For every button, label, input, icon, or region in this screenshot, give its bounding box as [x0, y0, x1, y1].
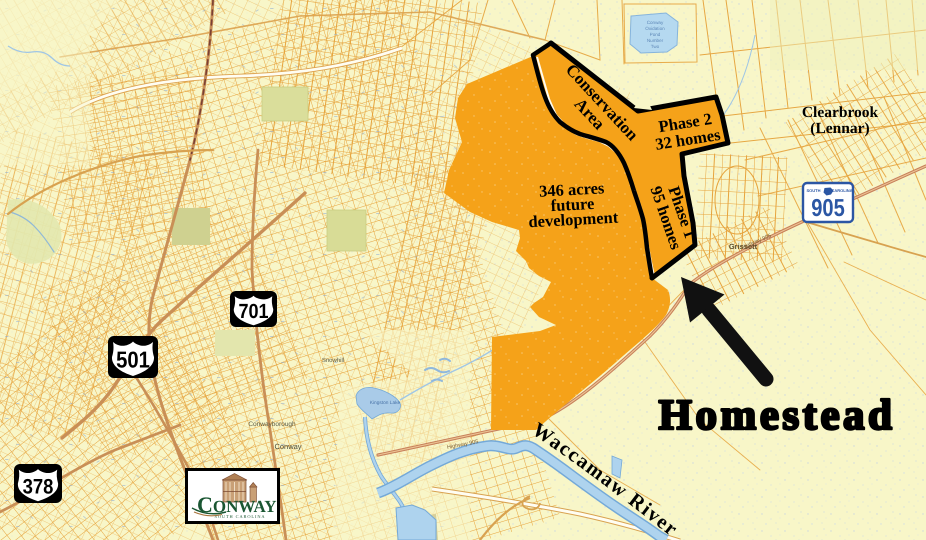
svg-text:Conway: Conway: [647, 20, 664, 25]
svg-text:378: 378: [23, 476, 54, 499]
svg-text:501: 501: [116, 347, 150, 373]
svg-text:(Lennar): (Lennar): [810, 120, 869, 137]
svg-text:SOUTH CAROLINA: SOUTH CAROLINA: [214, 514, 265, 519]
svg-text:Snowhill: Snowhill: [322, 357, 344, 364]
svg-text:Conwayborough: Conwayborough: [248, 421, 296, 428]
svg-text:Homestead: Homestead: [659, 392, 896, 439]
svg-text:Oxidation: Oxidation: [645, 26, 665, 31]
svg-text:Clearbrook: Clearbrook: [802, 104, 879, 121]
svg-text:Pond: Pond: [650, 32, 661, 37]
svg-text:905: 905: [811, 195, 845, 222]
svg-text:Kingston Lake: Kingston Lake: [370, 400, 401, 406]
svg-text:Two: Two: [651, 44, 660, 49]
svg-text:SOUTH: SOUTH: [807, 188, 821, 193]
svg-text:Number: Number: [647, 38, 664, 43]
svg-text:CAROLINA: CAROLINA: [831, 188, 852, 193]
svg-text:Conway: Conway: [274, 442, 301, 451]
svg-text:701: 701: [238, 300, 268, 323]
